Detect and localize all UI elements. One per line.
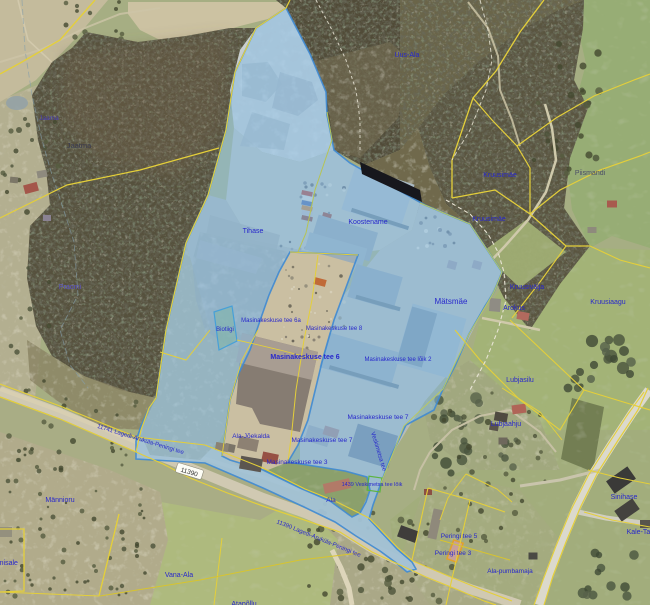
svg-text:Kale-Tali: Kale-Tali xyxy=(627,529,650,536)
svg-text:Piismandi: Piismandi xyxy=(575,170,606,177)
svg-text:Mätsmäe: Mätsmäe xyxy=(435,297,468,306)
svg-text:Kruusiaagu: Kruusiaagu xyxy=(590,299,626,306)
svg-text:Lubjasilu: Lubjasilu xyxy=(506,377,534,384)
svg-text:Peringi tee 5: Peringi tee 5 xyxy=(441,533,478,540)
svg-text:1439 Veskimetsa tee lõik: 1439 Veskimetsa tee lõik xyxy=(342,482,403,488)
svg-text:Peringi tee 3: Peringi tee 3 xyxy=(435,550,472,557)
svg-text:Masinakeskuse tee 8: Masinakeskuse tee 8 xyxy=(306,326,363,332)
svg-text:Ala: Ala xyxy=(326,497,336,504)
svg-text:Ala-Jõekalda: Ala-Jõekalda xyxy=(232,433,270,440)
svg-text:Atapõllu: Atapõllu xyxy=(231,601,256,605)
svg-text:Biotiigi: Biotiigi xyxy=(216,327,234,333)
svg-text:Masinakeskuse tee 6a: Masinakeskuse tee 6a xyxy=(241,318,301,324)
svg-text:Kruusimäe: Kruusimäe xyxy=(472,216,506,223)
svg-text:Masinakeskuse tee 6: Masinakeskuse tee 6 xyxy=(270,354,339,361)
svg-text:Männisale: Männisale xyxy=(0,560,18,567)
svg-text:Arokus: Arokus xyxy=(503,305,525,312)
svg-text:Ala-pumbamaja: Ala-pumbamaja xyxy=(487,568,533,575)
svg-text:Praomi: Praomi xyxy=(59,284,82,291)
svg-text:Masinakeskuse tee 7: Masinakeskuse tee 7 xyxy=(347,414,408,421)
svg-text:Uus-Ala: Uus-Ala xyxy=(395,52,420,59)
svg-text:Kruusimäe: Kruusimäe xyxy=(483,172,517,179)
svg-text:Masinakeskuse tee 7: Masinakeskuse tee 7 xyxy=(291,437,352,444)
svg-text:Lubjaahju: Lubjaahju xyxy=(491,421,521,428)
svg-text:Masinakeskuse tee lõik 2: Masinakeskuse tee lõik 2 xyxy=(364,357,432,363)
svg-text:Tihase: Tihase xyxy=(243,228,264,235)
svg-text:Jaama: Jaama xyxy=(39,115,59,122)
svg-text:Vana-Ala: Vana-Ala xyxy=(165,572,193,579)
svg-text:Jaatma: Jaatma xyxy=(67,141,92,150)
svg-text:Kruusivälja: Kruusivälja xyxy=(510,284,544,291)
svg-text:Männioru: Männioru xyxy=(45,497,74,504)
svg-text:Koostename: Koostename xyxy=(348,219,387,226)
svg-text:Masinakeskuse tee 3: Masinakeskuse tee 3 xyxy=(266,459,327,466)
svg-text:Sinihase: Sinihase xyxy=(611,494,638,501)
